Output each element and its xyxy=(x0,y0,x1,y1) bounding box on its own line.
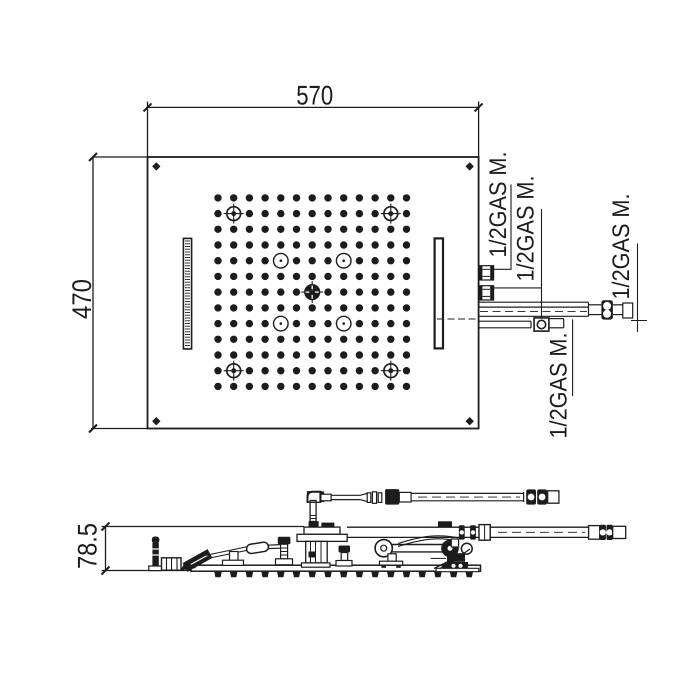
svg-text:78.5: 78.5 xyxy=(73,523,103,569)
svg-text:1/2GAS M.: 1/2GAS M. xyxy=(513,176,540,282)
svg-text:1/2GAS M.: 1/2GAS M. xyxy=(546,333,573,439)
svg-text:470: 470 xyxy=(67,279,97,319)
svg-text:1/2GAS M.: 1/2GAS M. xyxy=(608,194,635,300)
svg-text:570: 570 xyxy=(296,80,333,110)
svg-text:1/2GAS M.: 1/2GAS M. xyxy=(485,152,512,258)
